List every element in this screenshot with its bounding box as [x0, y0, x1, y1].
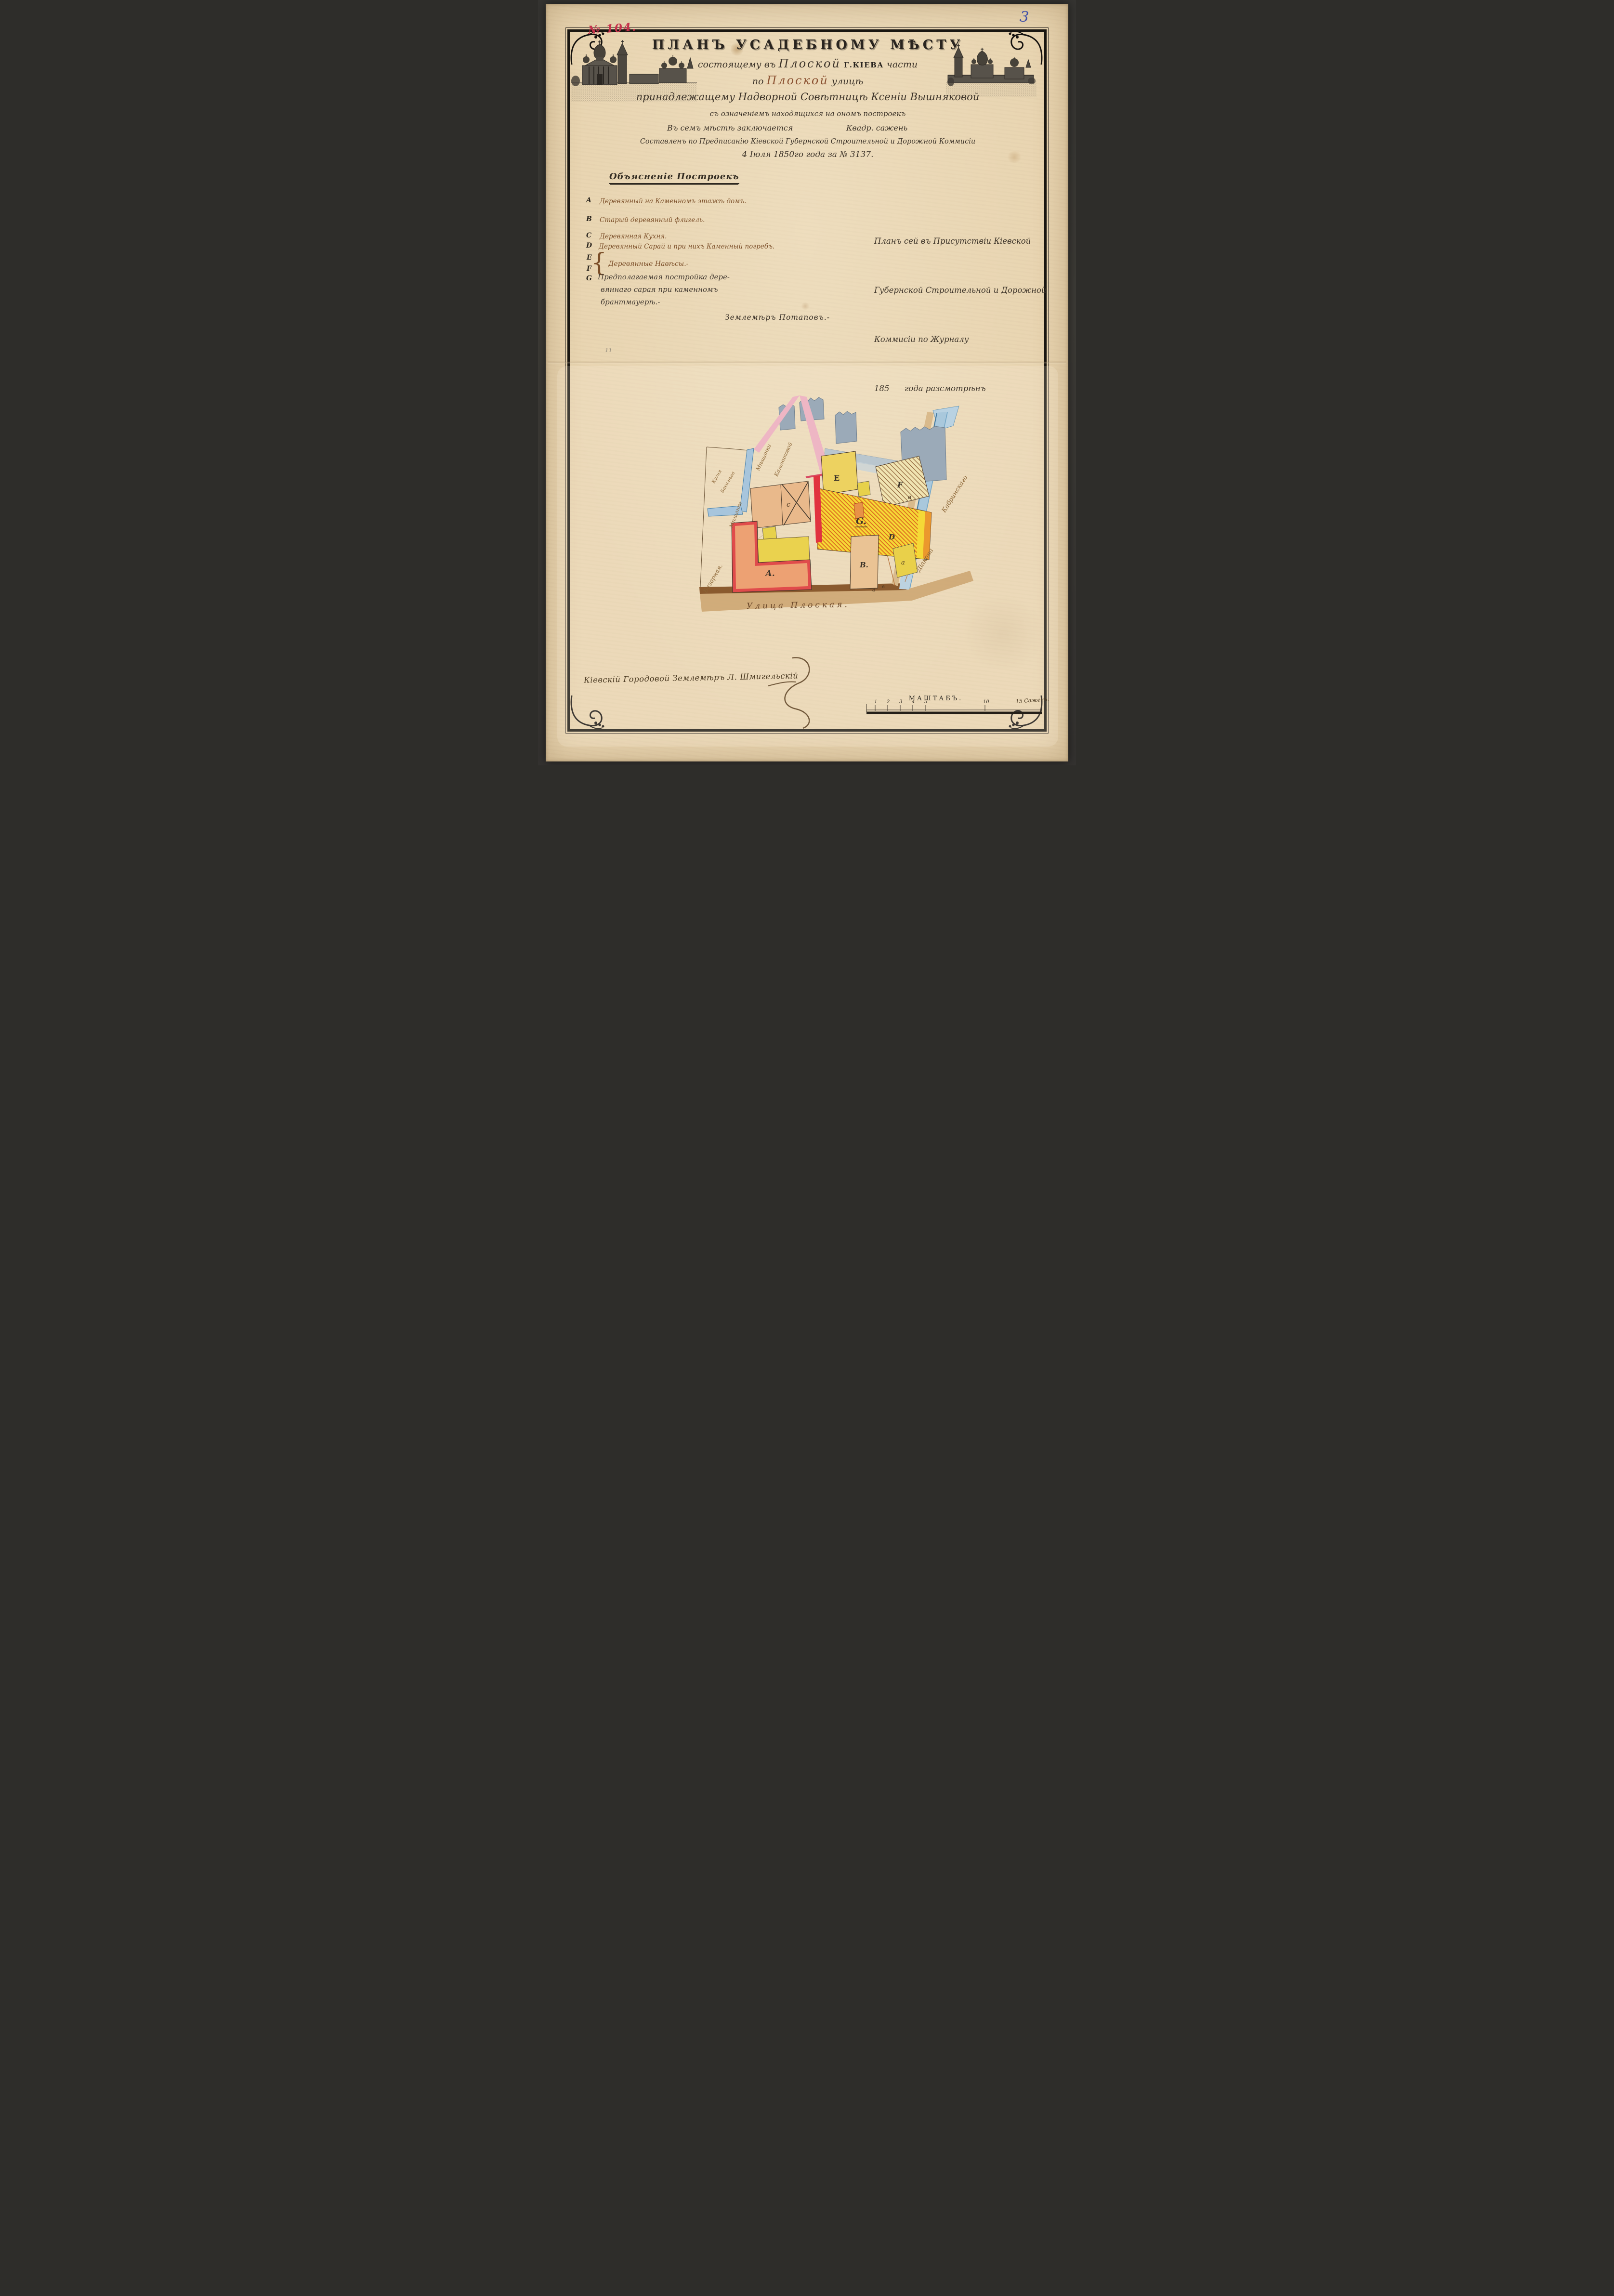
pencil-note: 11: [605, 347, 612, 354]
firewall-red-strip: [814, 475, 822, 543]
small-yellow-annex: [857, 481, 870, 497]
document-content: № 104. 3 11: [538, 0, 1076, 765]
scale-tick-10: 10: [983, 699, 989, 705]
title-line-location: состоящему въ Плоской Г.КІЕВА части: [619, 57, 997, 70]
legend-letter-c: C: [586, 232, 591, 239]
scale-title: МАШТАБЪ.: [909, 695, 963, 702]
approval-line-2: Губернской Строительной и Дорожной: [874, 282, 1047, 299]
scale-tick-1: 1: [874, 699, 877, 705]
title-line-commission: Составленъ по Предписанію Кіевской Губер…: [619, 138, 997, 145]
building-c-kitchen: [750, 481, 811, 542]
label-building-a: А.: [764, 569, 775, 578]
title-l2-pre: состоящему въ: [698, 59, 776, 70]
legend-item-a: Деревянный на Каменномъ этажѣ домъ.: [600, 197, 747, 205]
title-l2-city: Г.КІЕВА: [844, 61, 884, 69]
label-building-e: Е: [834, 473, 840, 483]
site-plan: А. В. с Е F G. D а в а в Мѣщанки Каленик…: [697, 389, 1016, 617]
legend-item-d: Деревянный Сарай и при нихъ Каменный пог…: [599, 243, 774, 250]
legend-item-g-line2: вяннаго сарая при каменномъ: [601, 285, 718, 294]
label-point-street-b: в: [882, 584, 885, 590]
neighbor-label-forge-2: Бакалѣва: [720, 471, 736, 495]
legend-item-g-line1: Предполагаемая постройка дере-: [598, 273, 730, 281]
label-point-v: в: [908, 494, 911, 500]
legend-letter-g: G: [586, 275, 592, 282]
label-building-g: G.: [856, 516, 866, 526]
legend-item-b: Старый деревянный флигель.: [600, 216, 705, 224]
legend-header: Объясненіе Построекъ: [609, 171, 739, 184]
document-paper: № 104. 3 11: [546, 4, 1068, 761]
scale-tick-3: 3: [899, 699, 902, 705]
legend-item-ef: Деревянные Навѣсы.-: [608, 260, 688, 268]
legend-item-c: Деревянная Кухня.: [600, 233, 667, 240]
title-line-note: съ означеніемъ находящихся на ономъ пост…: [619, 109, 997, 118]
title-l2-district: Плоской: [779, 57, 841, 70]
plot-boundary-left: [700, 447, 707, 587]
title-line-date: 4 Іюля 1850го года за № 3137.: [619, 150, 997, 159]
label-building-b: В.: [859, 561, 868, 569]
legend-letter-b: B: [586, 215, 592, 223]
title-line-street: по Плоской улицѣ: [619, 74, 997, 87]
scale-tick-4: 4: [911, 699, 915, 705]
title-line-owner: принадлежащему Надворной Совѣтницѣ Ксені…: [619, 91, 997, 103]
label-building-c: с: [787, 501, 790, 509]
scale-tick-2: 2: [886, 699, 890, 705]
neighbor-label-forge-1: Кузня: [711, 469, 723, 485]
page-number-pencil: 3: [1019, 8, 1029, 26]
building-shed-small: [893, 543, 918, 577]
label-shed-a: а: [901, 559, 905, 566]
approval-line-3: Коммисіи по Журналу: [874, 331, 1047, 348]
title-l3-pre: по: [752, 76, 764, 87]
scale-tick-5: 5: [924, 699, 927, 705]
building-e-shed: [821, 451, 858, 495]
scale-ticks: [866, 704, 1042, 712]
title-area-right: Квадр. сажень: [846, 123, 907, 132]
legend-item-g-line3: брантмауерѣ.-: [601, 298, 660, 306]
paper-stain: [800, 302, 810, 310]
neighbor-label-north-2: Калениковой: [773, 441, 793, 478]
legend-surveyor-signature: Землемѣръ Потаповъ.-: [725, 313, 830, 322]
title-l2-post: части: [887, 59, 918, 70]
title-area-left: Въ семъ мѣстѣ заключается: [667, 123, 793, 132]
plot-boundary-top-left: [707, 447, 733, 449]
label-building-d: D: [888, 533, 895, 541]
paper-stain: [1006, 151, 1023, 163]
scale-bar: МАШТАБЪ. 1 2 3 4 5 10: [864, 693, 1051, 721]
signature-flourish-icon: [764, 655, 822, 732]
label-point-street-a: а: [872, 588, 875, 593]
plot-boundary-top-left: [733, 449, 748, 450]
street-name-label: Улица Плоская.: [747, 600, 850, 611]
legend-letter-a: A: [586, 197, 591, 204]
title-l3-street: Плоской: [766, 74, 828, 87]
building-a-yellow-wing: [758, 537, 810, 564]
title-l3-post: улицѣ: [832, 76, 863, 87]
approval-line-1: Планъ сей въ Присутствіи Кіевской: [874, 233, 1047, 249]
scale-unit-label: 15 Саженъ.: [1015, 696, 1049, 705]
scan-background: № 104. 3 11: [538, 0, 1076, 765]
label-building-f: F: [897, 480, 904, 489]
document-title: ПЛАНЪ УСАДЕБНОМУ МѢСТУ: [619, 38, 997, 52]
